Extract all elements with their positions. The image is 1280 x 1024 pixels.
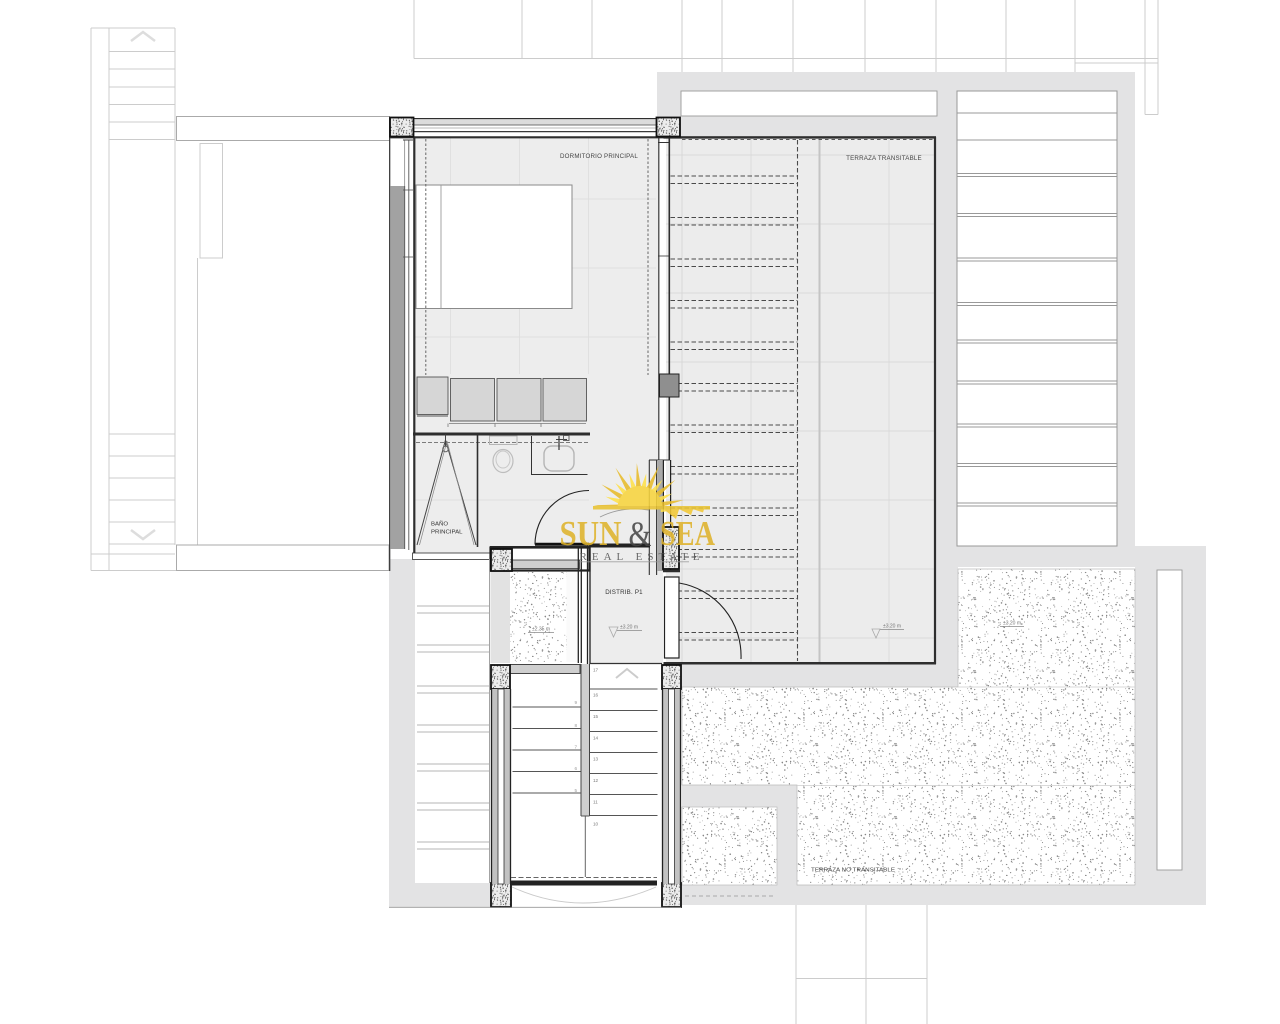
svg-text:REAL ESTATE: REAL ESTATE: [580, 551, 700, 563]
svg-text:TERRAZA TRANSITABLE: TERRAZA TRANSITABLE: [846, 155, 922, 162]
svg-text:±3.20 m: ±3.20 m: [620, 625, 638, 631]
svg-text:SEA: SEA: [660, 514, 716, 553]
svg-text:PRINCIPAL: PRINCIPAL: [431, 530, 463, 536]
svg-text:7: 7: [574, 745, 577, 750]
svg-text:16: 16: [593, 693, 599, 698]
svg-text:15: 15: [593, 714, 599, 719]
svg-text:5: 5: [574, 788, 577, 793]
svg-text:±2.35 m: ±2.35 m: [532, 627, 550, 633]
svg-text:14: 14: [593, 736, 599, 741]
svg-text:SUN: SUN: [560, 514, 622, 553]
svg-text:9: 9: [574, 700, 577, 705]
svg-text:12: 12: [593, 778, 599, 783]
svg-text:TERRAZA NO TRANSITABLE: TERRAZA NO TRANSITABLE: [811, 868, 895, 874]
svg-text:10: 10: [593, 822, 599, 827]
svg-text:11: 11: [593, 800, 598, 805]
svg-text:BAÑO: BAÑO: [431, 521, 448, 528]
svg-text:DISTRIB. P1: DISTRIB. P1: [605, 589, 643, 596]
svg-text:±3.20 m: ±3.20 m: [1003, 621, 1021, 627]
svg-text:±3.20 m: ±3.20 m: [883, 624, 901, 630]
svg-text:DORMITORIO PRINCIPAL: DORMITORIO PRINCIPAL: [560, 153, 638, 160]
svg-text:17: 17: [593, 668, 599, 673]
svg-text:13: 13: [593, 757, 599, 762]
svg-text:&: &: [629, 514, 652, 554]
svg-text:6: 6: [574, 766, 577, 771]
svg-text:8: 8: [574, 723, 577, 728]
